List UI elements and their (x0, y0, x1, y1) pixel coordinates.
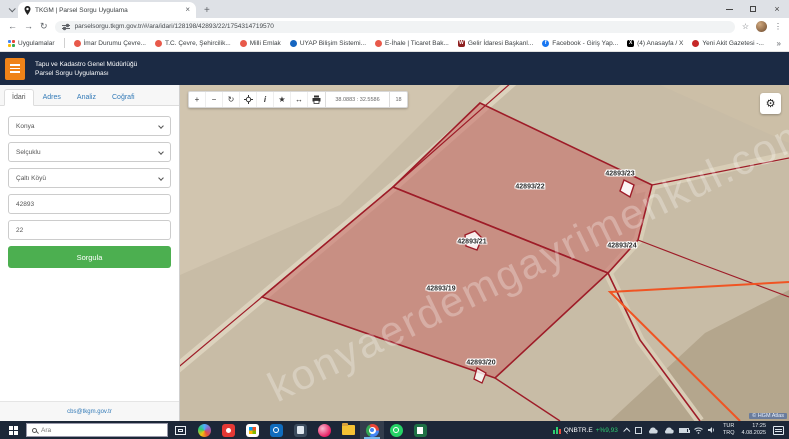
apps-shortcut[interactable]: Uygulamalar (8, 40, 55, 47)
site-settings-icon (62, 23, 70, 31)
windows-taskbar: QNBTR.E +%9,93 TUR TRQ 17:25 4.08.2025 (0, 421, 789, 439)
start-button[interactable] (0, 421, 26, 439)
browser-tabstrip: TKGM | Parsel Sorgu Uygulama × + × (0, 0, 789, 18)
district-select[interactable]: Selçuklu (8, 142, 171, 162)
block-number-input[interactable] (8, 194, 171, 214)
refresh-button[interactable]: ↻ (223, 92, 240, 107)
favorites-button[interactable]: ★ (274, 92, 291, 107)
maximize-icon (750, 6, 756, 12)
app-header: Tapu ve Kadastro Genel Müdürlüğü Parsel … (0, 52, 789, 85)
favicon: X (627, 40, 634, 47)
tab-idari[interactable]: İdari (4, 89, 34, 106)
tray-app-icon[interactable] (635, 427, 642, 434)
url-bar[interactable]: parselsorgu.tkgm.gov.tr/#/ara/idari/1281… (55, 21, 735, 33)
calculator-icon (294, 424, 307, 437)
bookmarks-bar: Uygulamalar İmar Durumu Çevre... T.C. Çe… (0, 35, 789, 52)
tray-icons (625, 426, 716, 434)
paint-button[interactable] (312, 421, 336, 439)
calculator-button[interactable] (288, 421, 312, 439)
bookmark-label: İmar Durumu Çevre... (84, 40, 147, 47)
printer-icon (312, 95, 321, 104)
app-title-line1: Tapu ve Kadastro Genel Müdürlüğü (35, 60, 137, 69)
system-tray: QNBTR.E +%9,93 TUR TRQ 17:25 4.08.2025 (553, 421, 789, 439)
apps-grid-icon (8, 40, 15, 47)
gear-icon: ⚙ (766, 97, 776, 110)
window-controls: × (717, 0, 789, 18)
province-value: Konya (16, 123, 34, 130)
chevron-down-icon (8, 5, 15, 12)
favicon (375, 40, 382, 47)
whatsapp-icon (390, 424, 403, 437)
copilot-button[interactable] (192, 421, 216, 439)
contact-email-link[interactable]: cbs@tkgm.gov.tr (67, 409, 112, 415)
map-toolbar: + − ↻ i ★ ↔ 38.0883 : 32.5586 18 (188, 91, 408, 108)
tab-analiz[interactable]: Analiz (70, 90, 103, 105)
ticker-change: +%9,93 (596, 427, 618, 434)
browser-tab-active[interactable]: TKGM | Parsel Sorgu Uygulama × (18, 2, 196, 18)
excel-icon (414, 424, 427, 437)
recorder-button[interactable] (216, 421, 240, 439)
chrome-icon (366, 424, 379, 437)
volume-icon[interactable] (708, 426, 716, 434)
taskbar-apps (168, 421, 432, 439)
outlook-button[interactable] (264, 421, 288, 439)
bookmark-star-icon[interactable]: ☆ (742, 22, 749, 31)
cloud-icon[interactable] (663, 427, 674, 434)
bookmarks-overflow-icon[interactable]: » (777, 39, 781, 48)
store-icon (246, 424, 259, 437)
boundary-line (495, 378, 560, 421)
bookmark-label: (4) Anasayfa / X (637, 40, 683, 47)
parcel-label: 42893/20 (466, 360, 495, 367)
parcel-label: 42893/21 (457, 239, 486, 246)
map-canvas[interactable]: konyaerdemgayrimenkul.com 42893/22 42893… (180, 85, 789, 421)
zoom-out-button[interactable]: − (206, 92, 223, 107)
bookmark-label: Gelir İdaresi Başkanl... (468, 40, 533, 47)
wifi-icon[interactable] (694, 427, 703, 434)
print-button[interactable] (308, 92, 325, 107)
keyboard-layout: TRQ (723, 430, 735, 437)
bookmark-item[interactable]: T.C. Çevre, Şehircilik... (155, 40, 231, 47)
road (635, 155, 789, 190)
back-button[interactable]: ← (8, 22, 17, 31)
measure-button[interactable]: ↔ (291, 92, 308, 107)
bookmark-label: Facebook - Giriş Yap... (552, 40, 618, 47)
bookmark-item[interactable]: Yeni Akit Gazetesi -... (692, 40, 764, 47)
district-value: Selçuklu (16, 149, 41, 156)
boundary-line (652, 158, 789, 185)
crosshair-icon (244, 95, 253, 104)
browser-menu-icon[interactable]: ⋮ (774, 22, 781, 31)
map-settings-button[interactable]: ⚙ (760, 93, 781, 114)
bookmark-item[interactable]: X(4) Anasayfa / X (627, 40, 683, 47)
parcel-label: 42893/23 (605, 171, 634, 178)
search-input[interactable] (41, 427, 162, 434)
window-minimize-button[interactable] (717, 0, 741, 18)
battery-icon[interactable] (679, 428, 689, 433)
notification-center-icon[interactable] (773, 426, 784, 435)
folder-icon (342, 425, 355, 435)
neighborhood-select[interactable]: Çaltı Köyü (8, 168, 171, 188)
zoom-level: 18 (389, 92, 407, 107)
tab-close-icon[interactable]: × (185, 6, 190, 14)
bookmark-item[interactable]: Milli Emlak (240, 40, 281, 47)
chevron-down-icon (158, 149, 164, 155)
terrain-field-dark (610, 290, 789, 421)
favicon (240, 40, 247, 47)
favicon (290, 40, 297, 47)
store-button[interactable] (240, 421, 264, 439)
chrome-button[interactable] (360, 421, 384, 439)
bookmark-label: UYAP Bilişim Sistemi... (300, 40, 366, 47)
parcel-number-input[interactable] (8, 220, 171, 240)
tab-adres[interactable]: Adres (36, 90, 68, 105)
tray-expand-icon[interactable] (623, 427, 630, 434)
bookmark-item[interactable]: fFacebook - Giriş Yap... (542, 40, 618, 47)
recorder-icon (222, 424, 235, 437)
close-icon: × (774, 5, 779, 14)
favicon (155, 40, 162, 47)
browser-toolbar: ← → ↻ parselsorgu.tkgm.gov.tr/#/ara/idar… (0, 18, 789, 35)
hamburger-menu-button[interactable] (5, 58, 25, 80)
favicon (74, 40, 81, 47)
tab-cografi[interactable]: Coğrafi (105, 90, 142, 105)
parcel-label: 42893/22 (515, 184, 544, 191)
bookmark-label: E-İhale | Ticaret Bak... (385, 40, 449, 47)
bookmark-item[interactable]: İmar Durumu Çevre... (74, 40, 147, 47)
bookmark-item[interactable]: E-İhale | Ticaret Bak... (375, 40, 449, 47)
outlook-icon (270, 424, 283, 437)
taskbar-clock[interactable]: 17:25 4.08.2025 (742, 423, 766, 437)
new-tab-button[interactable]: + (204, 5, 210, 16)
chevron-down-icon (158, 175, 164, 181)
bookmark-item[interactable]: WGelir İdaresi Başkanl... (458, 40, 533, 47)
divider (64, 38, 65, 48)
window-close-button[interactable]: × (765, 0, 789, 18)
app-title-line2: Parsel Sorgu Uygulaması (35, 69, 137, 78)
query-sidebar: İdari Adres Analiz Coğrafi Konya Selçukl… (0, 85, 180, 421)
query-button[interactable]: Sorgula (8, 246, 171, 268)
bookmark-label: Yeni Akit Gazetesi -... (702, 40, 764, 47)
file-explorer-button[interactable] (336, 421, 360, 439)
sidebar-footer: cbs@tkgm.gov.tr (0, 401, 179, 421)
excel-button[interactable] (408, 421, 432, 439)
bookmark-item[interactable]: UYAP Bilişim Sistemi... (290, 40, 366, 47)
favicon: W (458, 40, 465, 47)
ticker-symbol: QNBTR.E (564, 427, 593, 434)
copilot-icon (198, 424, 211, 437)
cursor-coordinates: 38.0883 : 32.5586 (325, 92, 389, 107)
taskbar-search[interactable] (26, 423, 168, 437)
favicon (692, 40, 699, 47)
paint-icon (318, 424, 331, 437)
tab-search-button[interactable] (4, 1, 18, 17)
stock-chart-icon (553, 427, 561, 434)
app-title: Tapu ve Kadastro Genel Müdürlüğü Parsel … (35, 60, 137, 78)
zoom-in-button[interactable]: + (189, 92, 206, 107)
province-select[interactable]: Konya (8, 116, 171, 136)
chevron-down-icon (158, 123, 164, 129)
minimize-icon (726, 9, 733, 10)
location-pin-icon (24, 6, 31, 15)
bookmark-label: Milli Emlak (250, 40, 281, 47)
profile-avatar[interactable] (756, 21, 767, 32)
tab-title: TKGM | Parsel Sorgu Uygulama (35, 7, 181, 14)
bookmark-label: T.C. Çevre, Şehircilik... (165, 40, 231, 47)
reload-button[interactable]: ↻ (40, 22, 48, 31)
task-view-icon (175, 426, 186, 435)
parcel-label: 42893/24 (607, 243, 636, 250)
clock-date: 4.08.2025 (742, 430, 766, 437)
window-maximize-button[interactable] (741, 0, 765, 18)
locate-button[interactable] (240, 92, 257, 107)
neighborhood-value: Çaltı Köyü (16, 175, 46, 182)
sidebar-tabs: İdari Adres Analiz Coğrafi (0, 85, 179, 106)
parcel-label: 42893/19 (426, 286, 455, 293)
stock-ticker-widget[interactable]: QNBTR.E +%9,93 (553, 427, 618, 434)
forward-button[interactable]: → (24, 22, 33, 31)
search-icon (32, 428, 37, 433)
keyboard-language-indicator[interactable]: TUR TRQ (723, 423, 735, 437)
info-button[interactable]: i (257, 92, 274, 107)
screen: TKGM | Parsel Sorgu Uygulama × + × ← → ↻… (0, 0, 789, 439)
windows-logo-icon (9, 426, 18, 435)
query-form: Konya Selçuklu Çaltı Köyü Sorgula (0, 106, 179, 401)
favicon: f (542, 40, 549, 47)
onedrive-cloud-icon[interactable] (647, 427, 658, 434)
clock-time: 17:25 (742, 423, 766, 430)
map-layers (180, 85, 789, 421)
apps-label: Uygulamalar (18, 40, 55, 47)
language-code: TUR (723, 423, 735, 430)
task-view-button[interactable] (168, 421, 192, 439)
url-text: parselsorgu.tkgm.gov.tr/#/ara/idari/1281… (75, 23, 274, 30)
map-attribution: © HGM Atlas (749, 413, 787, 419)
whatsapp-button[interactable] (384, 421, 408, 439)
